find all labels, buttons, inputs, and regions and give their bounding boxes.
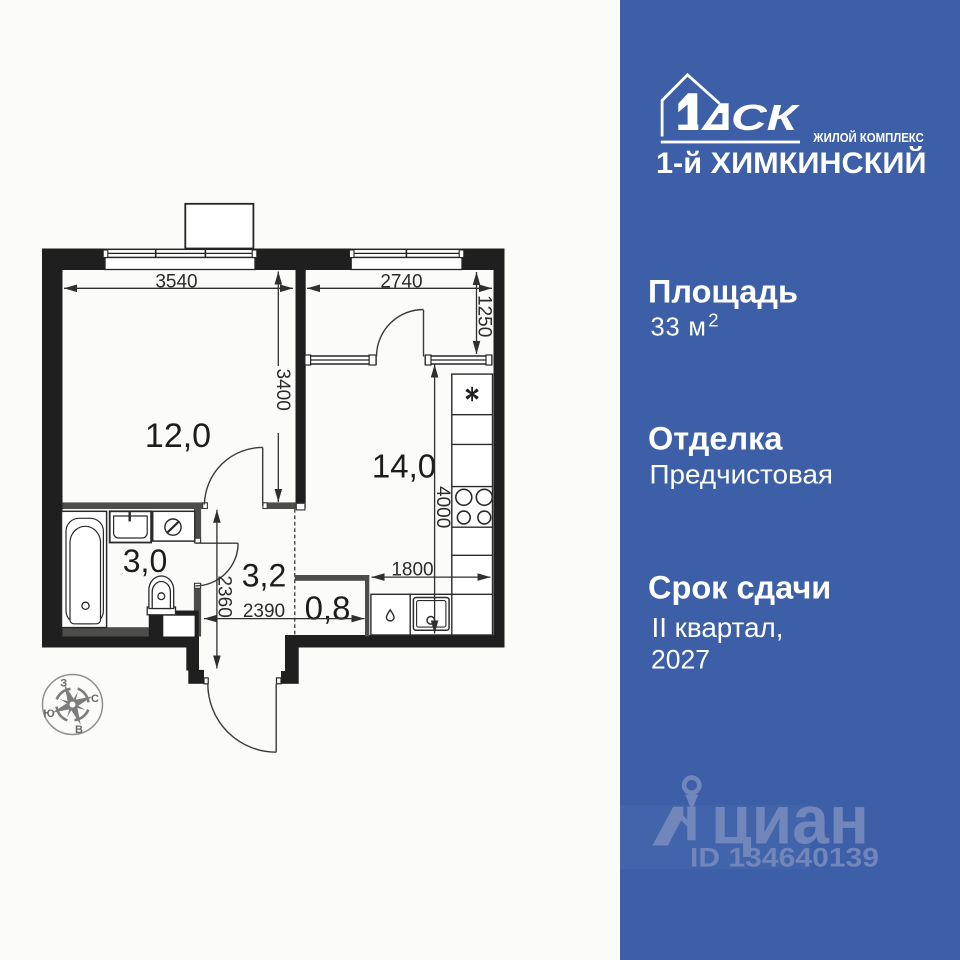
svg-text:1800: 1800 bbox=[391, 559, 433, 580]
svg-text:В: В bbox=[75, 724, 83, 736]
svg-text:СК: СК bbox=[731, 97, 800, 138]
svg-text:14,0: 14,0 bbox=[372, 448, 436, 485]
svg-text:ЖИЛОЙ КОМПЛЕКС: ЖИЛОЙ КОМПЛЕКС bbox=[812, 130, 923, 145]
svg-text:Площадь: Площадь bbox=[648, 274, 798, 310]
svg-text:0,8: 0,8 bbox=[305, 590, 351, 627]
svg-text:Ю: Ю bbox=[43, 708, 54, 720]
svg-text:1250: 1250 bbox=[473, 295, 494, 337]
svg-text:Отделка: Отделка bbox=[648, 421, 783, 457]
svg-text:2740: 2740 bbox=[380, 271, 422, 292]
svg-text:3,2: 3,2 bbox=[242, 558, 286, 594]
svg-text:II квартал,: II квартал, bbox=[652, 612, 784, 643]
svg-text:1-й ХИМКИНСКИЙ: 1-й ХИМКИНСКИЙ bbox=[656, 146, 927, 180]
svg-text:2360: 2360 bbox=[214, 576, 235, 618]
svg-text:12,0: 12,0 bbox=[145, 417, 211, 455]
svg-text:3540: 3540 bbox=[155, 271, 197, 292]
svg-text:Предчистовая: Предчистовая bbox=[650, 460, 834, 490]
svg-text:Срок сдачи: Срок сдачи bbox=[648, 570, 831, 606]
svg-text:4000: 4000 bbox=[432, 486, 453, 528]
svg-text:2027: 2027 bbox=[651, 644, 710, 674]
svg-text:З: З bbox=[60, 678, 67, 690]
svg-text:ID 134640139: ID 134640139 bbox=[690, 843, 879, 873]
svg-text:С: С bbox=[91, 693, 99, 705]
svg-text:2390: 2390 bbox=[243, 601, 285, 622]
svg-text:3,0: 3,0 bbox=[123, 543, 167, 579]
svg-text:3400: 3400 bbox=[272, 369, 293, 411]
